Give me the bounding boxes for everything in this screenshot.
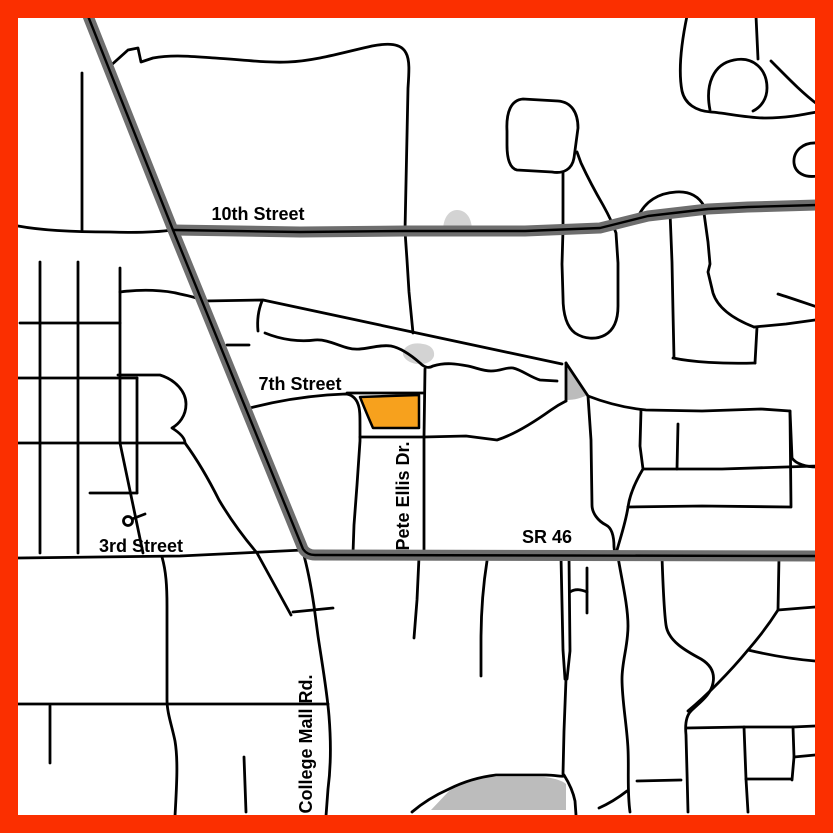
road-se-h5 (794, 755, 815, 757)
road-se-h3 (637, 780, 681, 781)
label-3rd-street: 3rd Street (99, 536, 183, 556)
road-pete-ellis (424, 369, 425, 553)
road-south-stub2 (244, 757, 246, 812)
street-map[interactable]: 10th Street 7th Street Pete Ellis Dr. SR… (0, 0, 833, 833)
label-sr-46: SR 46 (522, 527, 572, 547)
label-college-mall: College Mall Rd. (296, 674, 316, 813)
road-ne-stem (756, 16, 758, 59)
culdesac-circle (124, 517, 133, 526)
label-7th-street: 7th Street (258, 374, 341, 394)
road-mid-v3 (755, 327, 757, 363)
label-10th-street: 10th Street (211, 204, 304, 224)
road-block-h2 (628, 506, 790, 507)
road-block-v2 (677, 424, 678, 469)
label-pete-ellis: Pete Ellis Dr. (393, 441, 413, 550)
road-block-v3 (790, 411, 791, 507)
road-se-h2 (686, 726, 815, 728)
